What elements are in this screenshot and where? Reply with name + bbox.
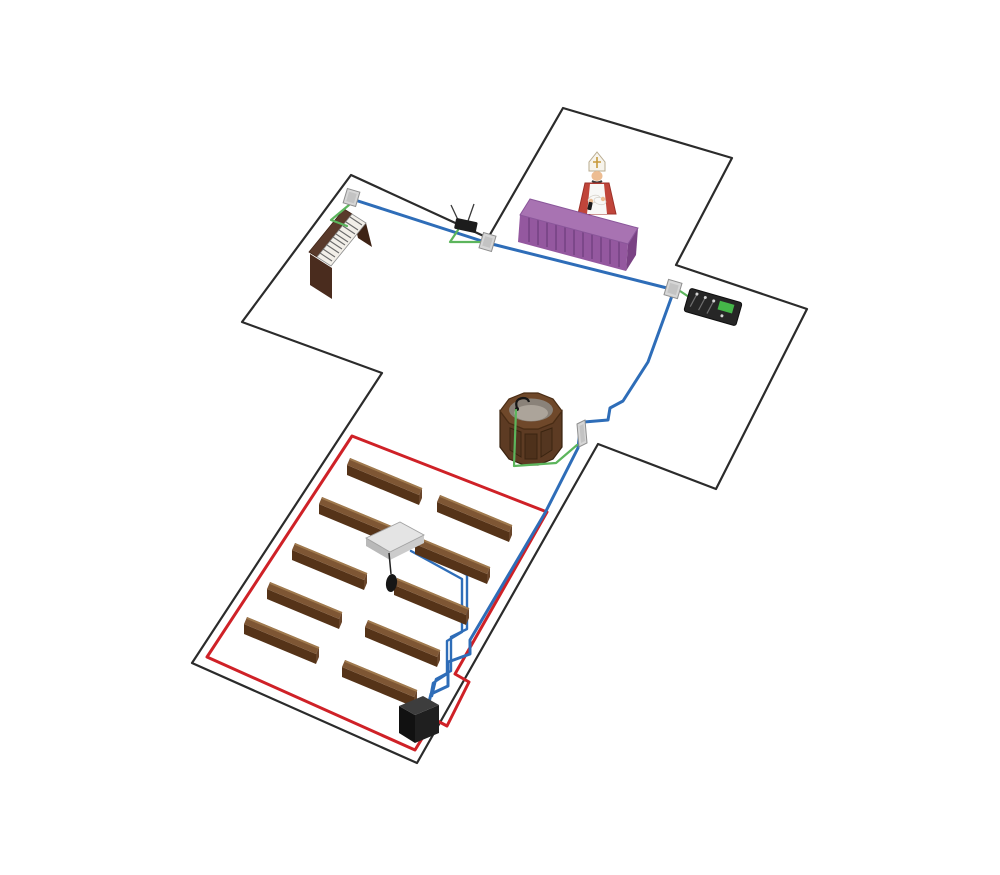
baptismal-font	[500, 393, 562, 465]
priest-figure	[578, 152, 616, 214]
wall-plate-font	[577, 420, 587, 447]
cable-amp-pair-b	[411, 551, 462, 699]
green-cables	[331, 205, 698, 466]
wall-plate-organ	[343, 188, 360, 206]
pew-right-3	[394, 578, 469, 625]
pew-left-4	[267, 582, 342, 629]
priest-hand-right	[601, 197, 605, 201]
altar-table	[518, 199, 638, 271]
wall-plate-mixer	[664, 279, 682, 298]
pew-rows	[244, 458, 512, 707]
wireless-receiver	[451, 204, 478, 233]
pew-left-5	[244, 617, 319, 664]
pew-right-5	[342, 660, 417, 707]
font-panel-center	[525, 434, 537, 459]
church-audio-diagram	[0, 0, 1000, 875]
priest-face	[592, 171, 603, 181]
mixer-console	[684, 288, 743, 326]
pew-left-3	[292, 543, 367, 590]
diagram-canvas	[0, 0, 1000, 875]
pew-right-4	[365, 620, 440, 667]
priest-collar	[592, 181, 602, 183]
pew-left-1	[347, 458, 422, 505]
pew-right-1	[437, 495, 512, 542]
font-bowl-inner	[514, 405, 548, 421]
cable-right-descent	[428, 293, 673, 706]
